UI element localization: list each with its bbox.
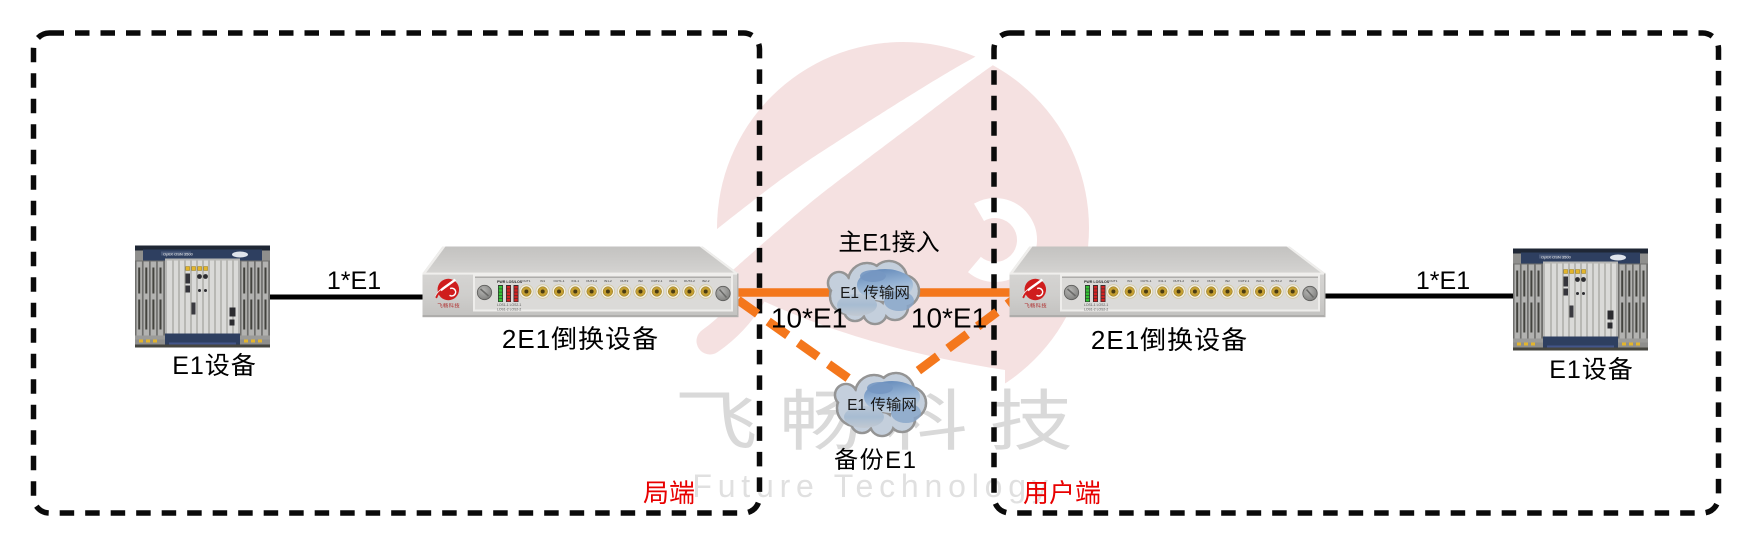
svg-text:E1: E1 [172, 352, 205, 380]
svg-text:E1: E1 [885, 447, 917, 474]
svg-text:2E1: 2E1 [502, 324, 551, 354]
svg-text:1*E1: 1*E1 [1416, 267, 1470, 295]
svg-text:E1: E1 [840, 285, 859, 302]
svg-text:E1: E1 [862, 230, 891, 257]
svg-text:10*E1: 10*E1 [911, 303, 987, 334]
svg-text:E1: E1 [847, 397, 866, 414]
svg-text:E1: E1 [1549, 356, 1582, 384]
svg-text:2E1: 2E1 [1091, 325, 1140, 355]
svg-text:10*E1: 10*E1 [771, 303, 847, 334]
svg-text:1*E1: 1*E1 [327, 267, 381, 295]
svg-text:Future Technology: Future Technology [692, 468, 1053, 504]
